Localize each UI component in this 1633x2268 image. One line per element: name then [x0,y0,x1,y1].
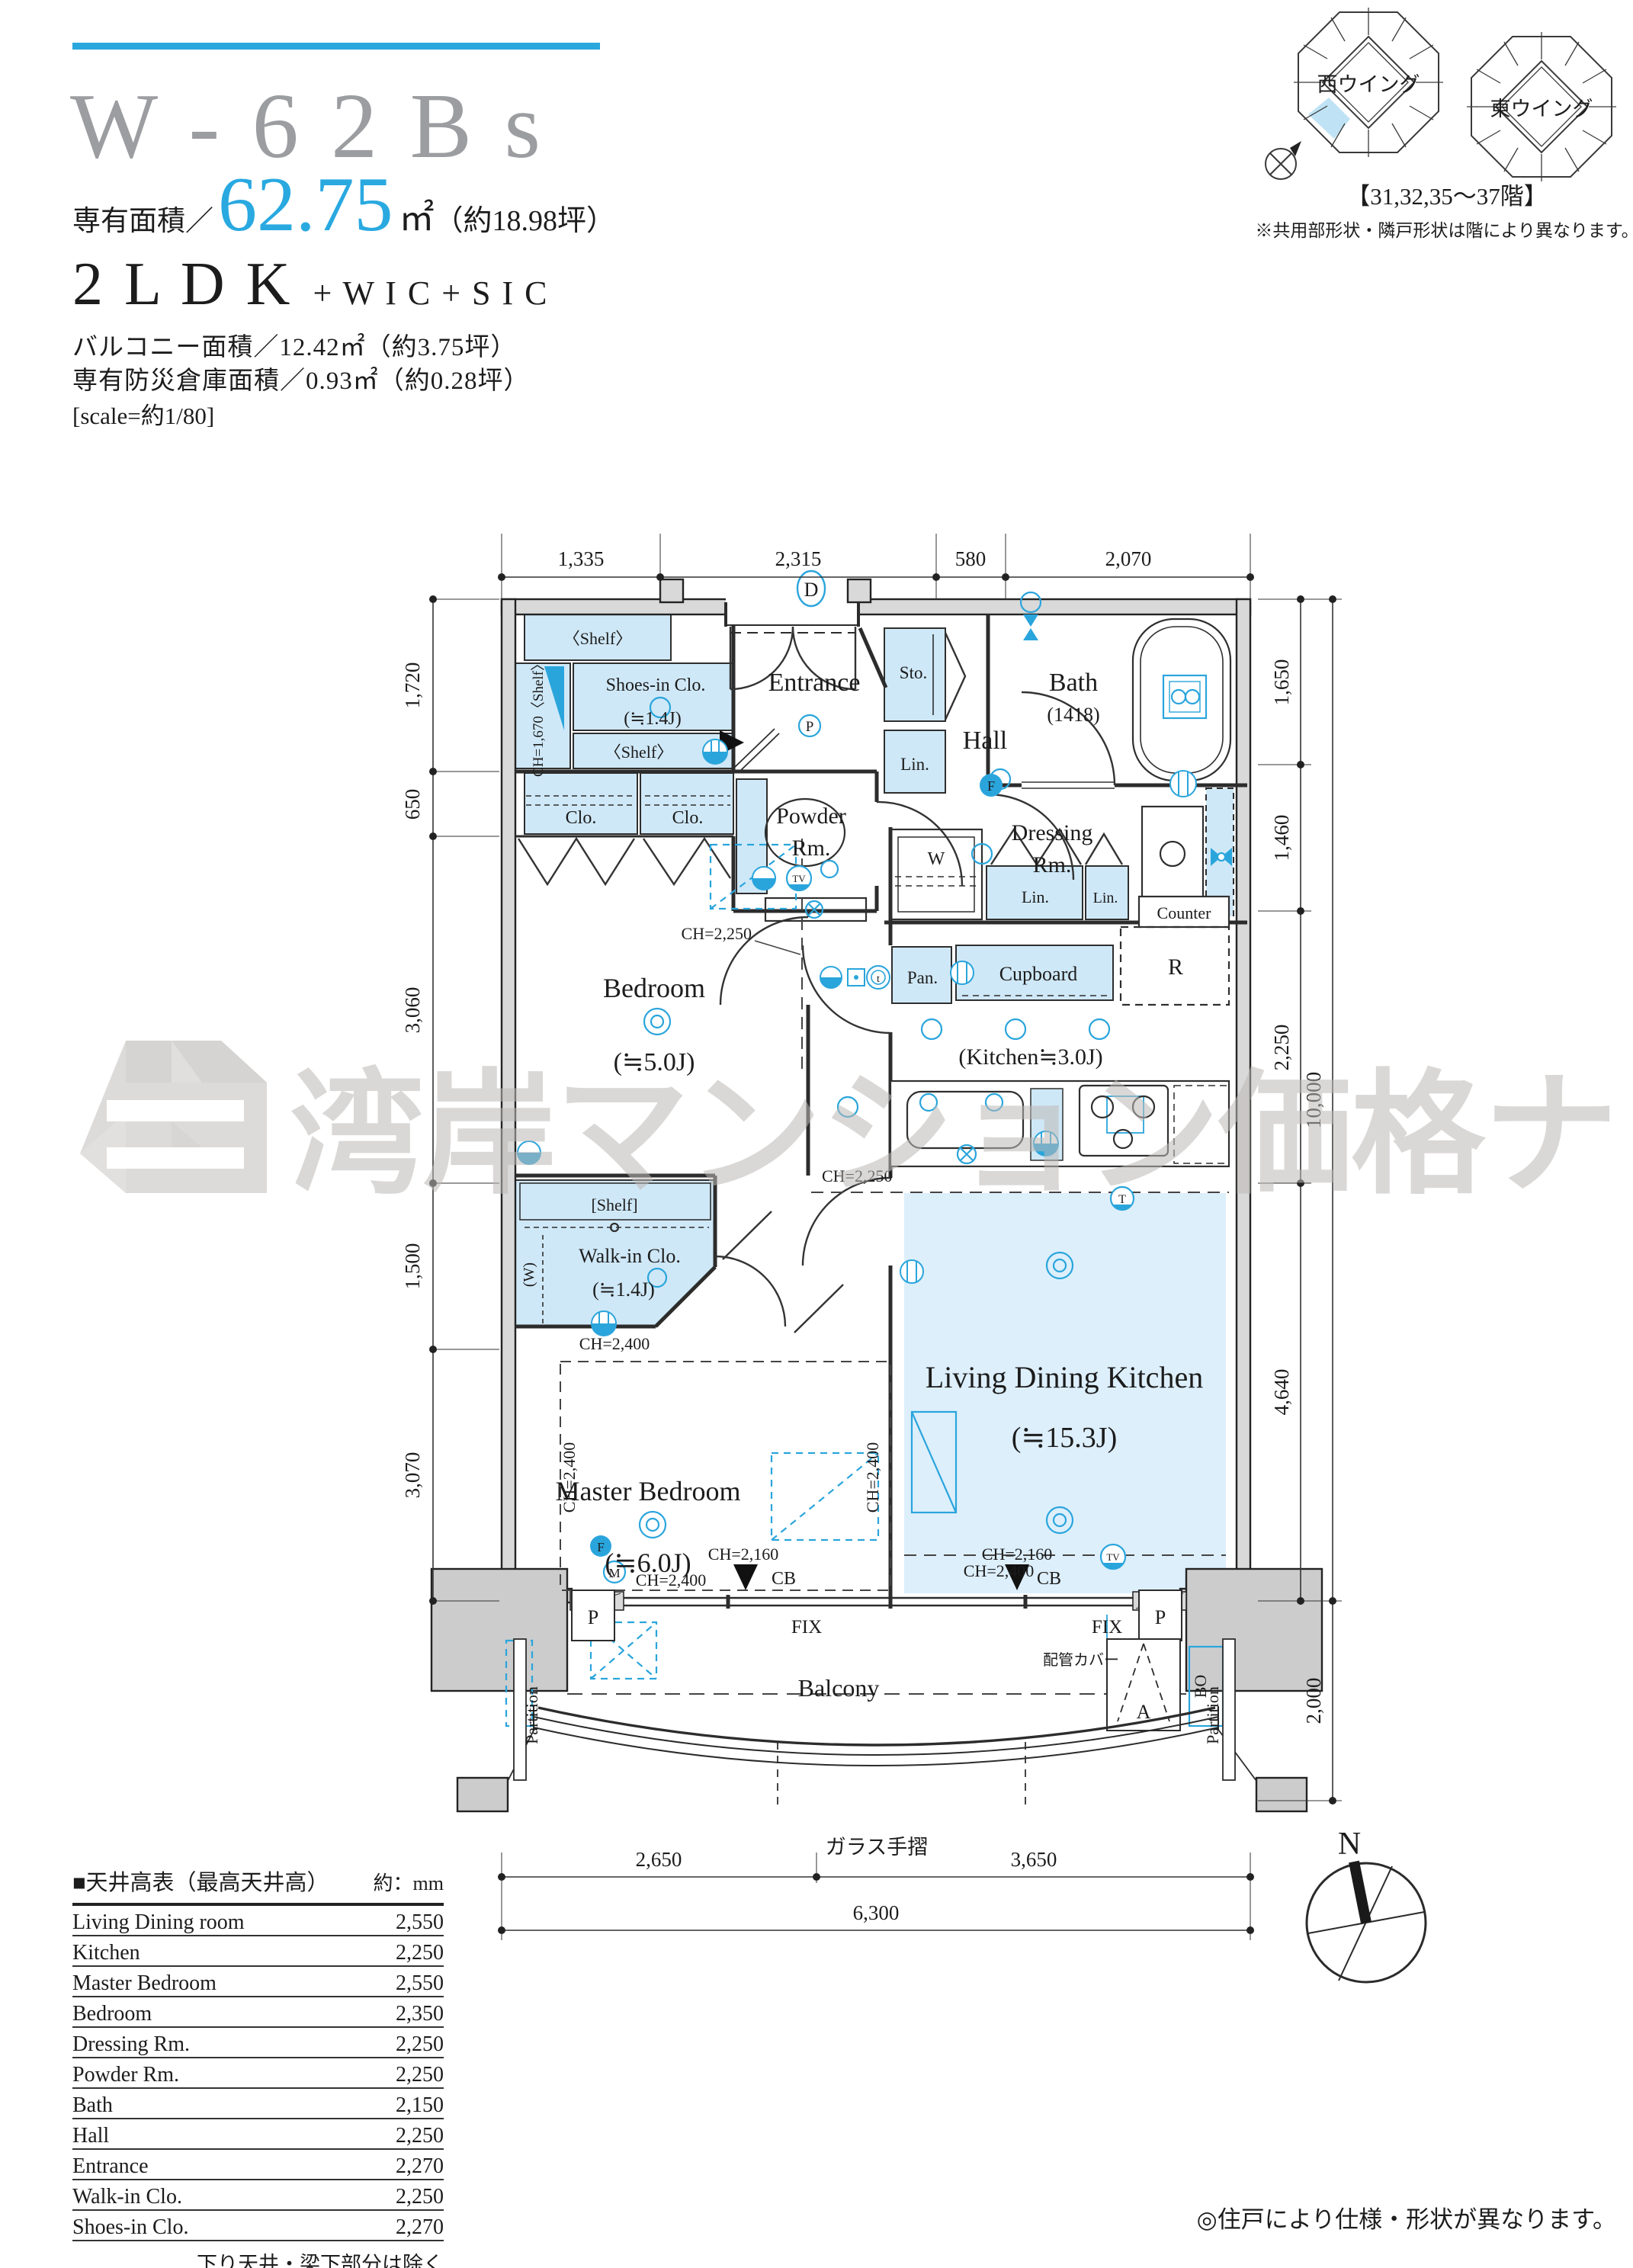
compass-needle [1354,1862,1366,1923]
fix-left: FIX [791,1617,822,1638]
table-row: Powder Rm.2,250 [72,2058,444,2089]
cb-left: CB [772,1569,796,1589]
wing-floors-label: 【31,32,35〜37階】 [1346,183,1548,210]
label-washer: W [928,849,945,869]
ldk-door [803,1178,890,1266]
hatch-a-label: A [1137,1701,1151,1723]
cb-triangle-left [733,1564,758,1590]
label-shoes-clo: Shoes-in Clo. [606,675,706,695]
row-value: 2,270 [396,2215,444,2240]
ch2160-right: CH=2,160 [982,1545,1052,1564]
tv-icon-ldk: TV [1101,1545,1125,1569]
label-bath: Bath [1049,669,1098,697]
dim-right-3: 4,640 [1270,1369,1293,1416]
row-label: Entrance [72,2154,149,2179]
mb-double-door-arc [715,1256,785,1326]
ch2400-mb-bottom: CH=2,400 [636,1570,706,1590]
dim-bottom-total: 6,300 [853,1901,900,1924]
table-row: Shoes-in Clo.2,270 [72,2211,444,2241]
label-lin1: Lin. [1022,887,1049,906]
label-walkin-w: (W) [521,1262,537,1287]
label-pan: Pan. [907,968,938,987]
label-shelf-ch: CH=1,670〈Shelf〉 [530,656,547,777]
label-dressing2: Rm. [1033,852,1072,877]
pillar-p-left: P [588,1606,598,1628]
label-dressing1: Dressing [1012,820,1093,845]
label-lin2: Lin. [1093,890,1118,906]
vanity-counter [1142,807,1203,903]
dim-left-3: 1,500 [401,1243,424,1290]
t2-icon-kitchen: T [1111,1187,1134,1210]
label-cupboard: Cupboard [999,963,1078,985]
bathtub [1133,619,1230,781]
closet-bifold-left [518,839,634,884]
east-wing-label: 東ウイング [1490,98,1593,120]
table-row: Hall2,250 [72,2119,444,2150]
dim-right-2: 2,250 [1270,1025,1293,1071]
label-balcony: Balcony [798,1674,880,1702]
dim-bottom-1: 3,650 [1011,1848,1057,1871]
porch-stub-left [660,579,683,602]
footer-note: ◎住戸により仕様・形状が異なります。 [1197,2200,1616,2234]
svg-text:F: F [597,1540,604,1554]
row-value: 2,250 [396,2124,444,2148]
row-label: Kitchen [72,1941,140,1965]
label-clo-left: Clo. [566,808,597,828]
row-value: 2,350 [396,2002,444,2026]
label-entrance: Entrance [768,669,861,697]
dim-top-2: 580 [955,547,987,570]
funnel-corridor [820,967,842,988]
dim-left-0: 1,720 [401,662,424,709]
funnel-shelf-strip [703,739,727,764]
partition-left: Partition [522,1686,541,1744]
funnel-ldk-wall [900,1260,923,1283]
row-value: 2,270 [396,2154,444,2179]
label-powder2: Rm. [792,836,831,861]
d-icon: D [797,571,825,606]
row-label: Powder Rm. [72,2063,179,2087]
label-shelf-top: 〈Shelf〉 [563,629,632,648]
row-label: Bath [72,2093,113,2118]
label-shoes-size: (≒1.4J) [624,709,681,729]
ch2400-walkin: CH=2,400 [579,1334,650,1353]
label-ldk-size: (≒15.3J) [1012,1422,1117,1454]
bath-controller-icon [1163,675,1206,718]
funnel-dressing [1170,771,1196,797]
row-label: Dressing Rm. [72,2032,190,2057]
dim-bottom-0: 2,650 [636,1848,682,1871]
fix-right: FIX [1092,1617,1122,1638]
table-header: ■天井高表（最高天井高） 約：mm [72,1865,444,1906]
wing-diagrams: 西ウイング 東ウイング [1255,8,1633,240]
ch2400-mb-right: CH=2,400 [863,1442,882,1513]
svg-text:F: F [987,778,995,794]
row-label: Hall [72,2124,109,2148]
label-shelf-bracket: [Shelf] [591,1195,637,1214]
dim-right-total: 10,000 [1302,1072,1325,1128]
row-label: Bedroom [72,2002,152,2026]
row-value: 2,250 [396,1941,444,1965]
dim-top-0: 1,335 [558,547,605,570]
label-lin-upper: Lin. [900,755,929,774]
row-label: Living Dining room [72,1910,245,1935]
dim-left-2: 3,060 [401,987,424,1034]
label-fridge: R [1168,954,1183,980]
row-value: 2,250 [396,2185,444,2209]
funnel-kitchen [1034,1131,1058,1156]
storage-bifold [945,633,965,720]
pillar-p-right: P [1155,1606,1166,1628]
table-row: Bath2,150 [72,2089,444,2119]
partition-panel-right [1223,1639,1235,1780]
tv-icon-bedroom: TV [787,866,811,890]
ceiling-light-bedroom [644,1009,670,1035]
table-row: Bedroom2,350 [72,1997,444,2028]
label-sto: Sto. [900,663,927,682]
mini-compass-icon [1266,141,1301,179]
balcony-pillar-right [1186,1569,1322,1691]
ch2400-ldk: CH=2,400 [964,1561,1034,1580]
label-counter: Counter [1157,903,1212,922]
ch2250-label-2: CH=2,250 [822,1166,892,1185]
label-bedroom-size: (≒5.0J) [614,1048,695,1076]
row-value: 2,550 [396,1971,444,1996]
dim-left-1: 650 [401,789,424,820]
cb-right: CB [1037,1569,1061,1589]
label-powder1: Powder [776,804,846,829]
label-walkin: Walk-in Clo. [579,1245,681,1267]
table-title: ■天井高表（最高天井高） [72,1865,329,1897]
floorplan-page: W - 6 2 B s 専有面積／ 62.75 ㎡ （約18.98坪） 2 L … [0,0,1633,2268]
funnel-bedroom-wall [518,1141,541,1164]
wall-top [502,599,1250,614]
label-clo-right: Clo. [672,808,704,828]
ch2400-mb-left: CH=2,400 [560,1442,579,1513]
ch2160-left: CH=2,160 [708,1545,778,1564]
label-shelf-strip: 〈Shelf〉 [605,743,673,762]
label-master-bedroom: Master Bedroom [556,1476,741,1506]
label-hall: Hall [963,727,1008,755]
svg-text:TV: TV [792,873,806,884]
dim-top-1: 2,315 [775,547,822,570]
svg-text:t: t [877,974,880,985]
t-icon-corridor: t [867,966,890,989]
f-icon-hall: F [980,774,1003,797]
funnel-cupboard [951,961,974,984]
row-value: 2,250 [396,2063,444,2087]
table-footnote: 下り天井・梁下部分は除く [72,2241,444,2268]
west-wing-label: 西ウイング [1317,73,1420,96]
row-label: Walk-in Clo. [72,2185,182,2209]
pipe-cover-label: 配管カバー [1043,1651,1119,1669]
row-value: 2,250 [396,2032,444,2057]
dim-left-4: 3,070 [401,1452,424,1499]
ceiling-light-mb [640,1512,666,1538]
svg-text:P: P [806,719,814,735]
balcony-zone [508,1564,1256,1781]
row-label: Master Bedroom [72,1971,217,1996]
svg-text:D: D [804,579,819,601]
east-wing-diagram: 東ウイング [1467,32,1616,181]
label-bedroom: Bedroom [603,973,705,1003]
svg-text:TV: TV [1106,1551,1120,1563]
porch-stub-right [848,579,871,602]
wall-right [1237,599,1250,1601]
row-value: 2,550 [396,1910,444,1935]
ch2250-label-1: CH=2,250 [682,924,752,943]
label-walkin-size: (≒1.4J) [592,1278,655,1301]
dim-right-0: 1,650 [1270,659,1293,706]
ac-box-ldk [772,1453,878,1540]
glass-rail-label: ガラス手摺 [826,1836,928,1859]
compass: N [1307,1827,1426,1982]
partition-right: Partition [1203,1686,1222,1744]
dim-top-3: 2,070 [1105,547,1152,570]
railing-block-right [1256,1778,1307,1811]
ceiling-height-table: ■天井高表（最高天井高） 約：mm Living Dining room2,55… [72,1865,444,2268]
svg-text:T: T [1118,1193,1126,1206]
table-row: Walk-in Clo.2,250 [72,2180,444,2211]
compass-north: N [1338,1827,1361,1862]
railing-block-left [457,1778,508,1811]
west-wing-diagram: 西ウイング [1294,8,1443,157]
table-row: Entrance2,270 [72,2150,444,2180]
row-value: 2,150 [396,2093,444,2118]
table-row: Dressing Rm.2,250 [72,2028,444,2058]
dim-balcony-depth: 2,000 [1302,1678,1325,1724]
wing-note: ※共用部形状・隣戸形状は階により異なります。 [1255,221,1633,240]
table-row: Kitchen2,250 [72,1936,444,1967]
funnel-powder [752,867,775,890]
funnel-walkin [592,1311,616,1336]
label-ldk: Living Dining Kitchen [926,1360,1203,1394]
label-kitchen: (Kitchen≒3.0J) [958,1044,1102,1070]
p-icon-entrance: P [799,715,820,736]
table-unit: 約：mm [374,1868,444,1896]
label-bath-size: (1418) [1047,704,1099,726]
wall-left [502,599,515,1601]
table-row: Master Bedroom2,550 [72,1967,444,1997]
dim-right-1: 1,460 [1270,815,1293,861]
row-label: Shoes-in Clo. [72,2215,188,2240]
balcony-pillar-left [432,1569,567,1691]
washer-box [890,829,982,919]
table-row: Living Dining room2,550 [72,1906,444,1936]
